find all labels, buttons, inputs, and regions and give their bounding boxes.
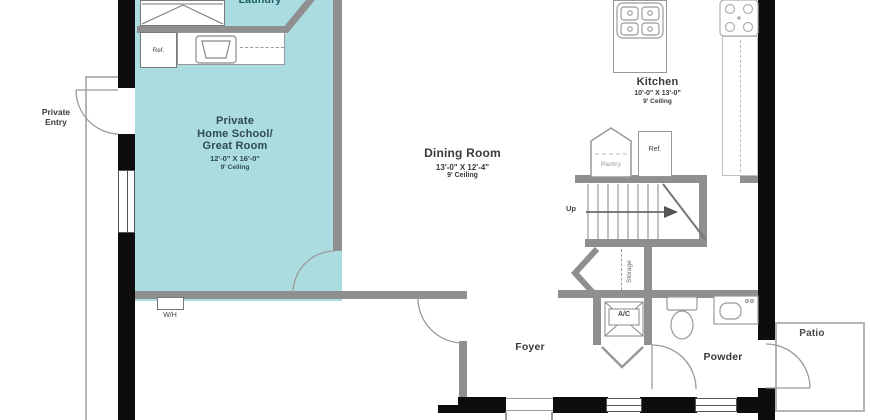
dining-room-label: Dining Room 13'-0" X 12'-4" 9' Ceiling [380, 147, 545, 180]
window [118, 170, 135, 233]
vanity-sink-icon [714, 296, 758, 324]
exterior-wall [737, 397, 775, 413]
exterior-wall [118, 0, 135, 88]
kitchen-island [613, 0, 667, 73]
counter [177, 32, 285, 65]
pantry-label: Pantry [589, 161, 633, 168]
room-dims: 10'-0" X 13'-0" [600, 90, 715, 98]
great-room-label: Private Home School/ Great Room 12'-0" X… [150, 115, 320, 171]
entry-porch-edge [85, 76, 87, 420]
counter-dashed-line [240, 47, 284, 48]
window [606, 398, 642, 412]
louver-door-icon [602, 347, 643, 367]
exterior-wall [118, 233, 135, 420]
room-name: Dining Room [380, 147, 545, 161]
pantry-closet [591, 128, 631, 177]
exterior-wall [553, 397, 608, 413]
wall-segment [585, 239, 707, 247]
room-name: Great Room [150, 140, 320, 153]
range-icon [720, 0, 758, 36]
room-dims: 12'-0" X 16'-0" [150, 155, 320, 164]
front-door-opening [506, 398, 553, 411]
kitchen-label: Kitchen 10'-0" X 13'-0" 9' Ceiling [600, 76, 715, 105]
exterior-wall [758, 0, 775, 340]
up-arrow-icon [586, 206, 678, 218]
foyer-label: Foyer [495, 341, 565, 353]
entry-porch-edge-top [85, 76, 118, 78]
powder-label: Powder [688, 351, 758, 363]
room-ceiling: 9' Ceiling [150, 164, 320, 171]
room-dims: 13'-0" X 12'-4" [380, 163, 545, 172]
laundry-label: Laundry [225, 0, 295, 6]
closet-bifold-doors [140, 0, 225, 26]
wall-segment [740, 175, 758, 183]
wall-segment [459, 341, 467, 398]
water-heater-icon [157, 297, 184, 310]
wall-segment [593, 290, 601, 345]
storage-dashed-line [621, 249, 622, 295]
up-label: Up [560, 205, 582, 214]
storage-label: Storage [626, 248, 638, 296]
patio-label: Patio [782, 328, 842, 340]
wall-segment [699, 183, 707, 247]
exterior-wall [458, 397, 506, 413]
water-heater-label: W/H [150, 312, 190, 320]
ref-great-room-label: Ref. [141, 47, 176, 54]
ref-kitchen-label: Ref. [639, 146, 671, 154]
window [695, 398, 737, 412]
counter-dashed-line [740, 40, 741, 172]
exterior-wall [640, 397, 697, 413]
room-name: Kitchen [600, 76, 715, 89]
floor-plan: Ref. W/H Ref. [0, 0, 870, 420]
exterior-wall [118, 134, 135, 170]
exterior-wall [438, 405, 463, 413]
wall-segment [333, 0, 342, 251]
door-arc [418, 298, 462, 343]
private-entry-label: Private Entry [25, 108, 87, 128]
stoop-edge [505, 412, 507, 420]
toilet-icon [667, 297, 697, 339]
stairs [588, 184, 705, 239]
room-name: Home School/ [150, 128, 320, 141]
stoop-edge [551, 412, 553, 420]
ac-label: A/C [606, 311, 642, 319]
label-line: Entry [25, 118, 87, 128]
wall-segment [558, 290, 758, 298]
room-name: Private [150, 115, 320, 128]
room-ceiling: 9' Ceiling [380, 172, 545, 180]
room-ceiling: 9' Ceiling [600, 98, 715, 105]
